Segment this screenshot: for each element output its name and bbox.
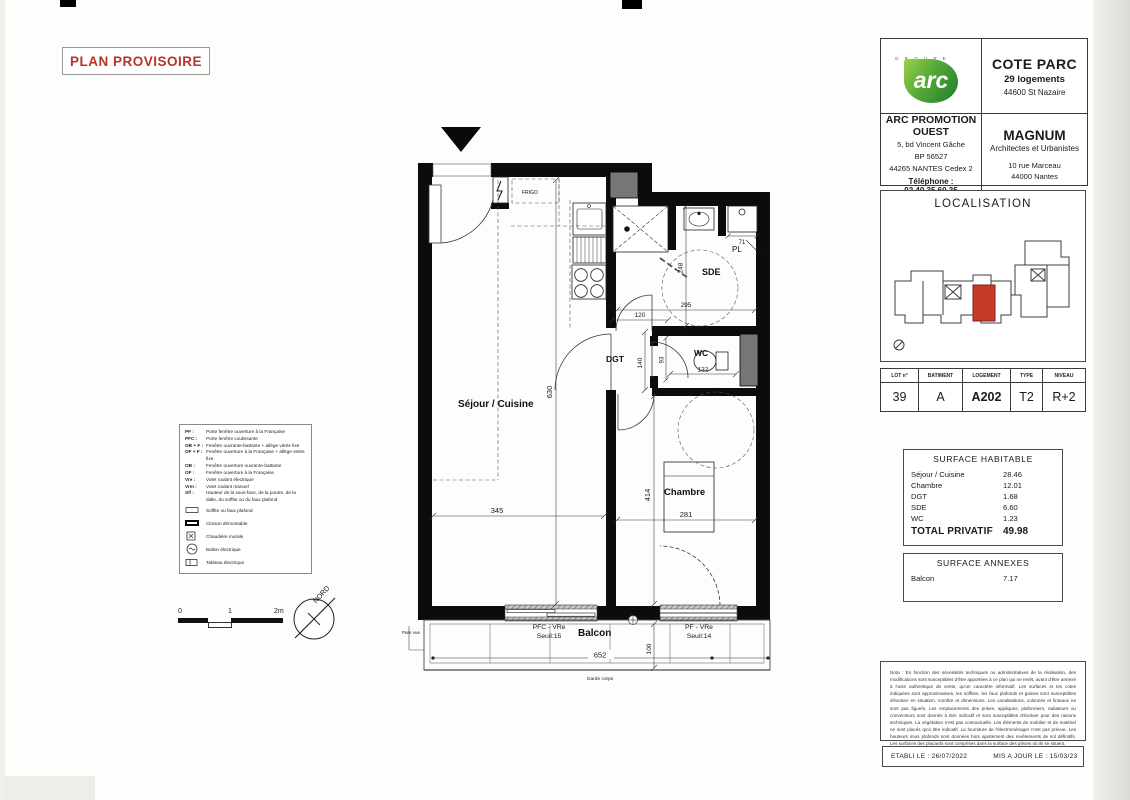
room-label-dgt: DGT [606,354,625,364]
established-date: ETABLI LE : 26/07/2022 [891,753,967,760]
lot-value-type: T2 [1011,383,1043,411]
legend-line: S/f :Hauteur de la sous-face, de la pout… [185,490,307,504]
floor-plan: 630 345 414 281 248 295 120 140 93 132 7… [400,110,780,710]
scale-0: 0 [178,608,182,615]
dim-93: 93 [660,356,666,363]
legend-line: PF :Porte fenêtre ouverture à la Françai… [185,429,307,436]
lot-table: LOT n° BATIMENT LOGEMENT TYPE NIVEAU 39 … [880,368,1086,412]
surface-row: DGT1.68 [911,491,1055,502]
lot-header-type: TYPE [1011,369,1043,383]
surface-total-row: TOTAL PRIVATIF49.98 [911,526,1055,537]
plan-balcony [409,616,770,671]
soffit-symbol-icon [185,506,206,514]
logo-cell: G R O U P E arc [881,39,982,114]
updated-date: MIS A JOUR LE : 15/03/23 [993,753,1077,760]
legend: PF :Porte fenêtre ouverture à la Françai… [179,424,312,574]
dim-345: 345 [491,506,504,515]
dim-140: 140 [637,357,644,368]
room-label-wc: WC [694,348,708,358]
lot-value-logement: A202 [963,383,1011,411]
room-label-sejour: Séjour / Cuisine [458,399,534,410]
architect-address1: 10 rue Marceau [1008,161,1061,171]
scan-shadow-right [1093,0,1130,800]
surface-annexes-box: SURFACE ANNEXES Balcon7.17 [903,553,1063,602]
surface-row: Balcon7.17 [911,573,1055,584]
dim-100: 100 [646,643,653,654]
dim-132: 132 [698,367,709,374]
legend-symbol-row: Ballon électrique [185,543,307,556]
scan-shadow-left [0,0,5,800]
localisation-box: LOCALISATION [880,190,1086,362]
project-name: COTE PARC [992,56,1077,72]
north-compass: NORD [288,582,340,644]
plan-dimension-labels: 630 345 414 281 248 295 120 140 93 132 7… [491,240,746,660]
architect-subtitle: Architectes et Urbanistes [990,144,1079,153]
lot-header-lot: LOT n° [881,369,919,383]
legend-line: OF + F :Fenêtre ouverture à la Française… [185,449,307,463]
surface-habitable-box: SURFACE HABITABLE Séjour / Cuisine28.46 … [903,449,1063,546]
lot-value-niveau: R+2 [1043,383,1085,411]
room-label-balcon: Balcon [578,628,611,639]
room-label-chambre: Chambre [664,487,705,498]
dim-248: 248 [678,262,685,273]
localisation-map [885,217,1081,357]
promoter-cell: ARC PROMOTION OUEST 5, bd Vincent Gâche … [881,114,982,195]
room-label-frigo: FRIGO [522,190,538,196]
surface-row: WC1.23 [911,513,1055,524]
dates-box: ETABLI LE : 26/07/2022 MIS A JOUR LE : 1… [882,746,1084,767]
legend-symbol-row: Chaudière murale [185,530,307,543]
dim-120: 120 [635,312,646,319]
compass-north-label: NORD [312,585,331,605]
legend-line: PFC :Porte fenêtre coulissante [185,436,307,443]
electrical-board-icon [185,558,206,567]
legend-symbol-row: Soffite ou faux plafond [185,504,307,517]
promoter-address2: BP 56527 [915,152,948,162]
dim-630: 630 [545,386,554,399]
localisation-unit-highlight [973,285,995,321]
legend-symbol-row: Cloison démontable [185,517,307,530]
dim-295: 295 [681,302,692,309]
annotation-garde-corps: Garde corps [587,676,614,682]
stamp-text: PLAN PROVISOIRE [70,54,202,69]
surface-row: SDE6.60 [911,502,1055,513]
annotation-window2-seuil: Seuil:14 [687,633,712,640]
scan-mark-top-center [622,0,642,9]
lot-header-niveau: NIVEAU [1043,369,1085,383]
lot-header-batiment: BATIMENT [919,369,963,383]
legend-line: Vre :Volet roulant électrique [185,477,307,484]
lot-header-logement: LOGEMENT [963,369,1011,383]
scale-2m: 2m [274,608,284,615]
water-heater-icon [185,543,206,555]
annotation-window2-type: PF - VRe [685,624,713,631]
dim-414: 414 [643,489,652,502]
dim-652: 652 [594,651,607,660]
plan-sheet: PLAN PROVISOIRE [0,0,1130,800]
localisation-title: LOCALISATION [881,198,1085,210]
architect-cell: MAGNUM Architectes et Urbanistes 10 rue … [982,114,1087,195]
architect-name: MAGNUM [1003,128,1065,143]
nota-box: Nota : En fonction des nécessités techni… [880,661,1086,741]
plan-annotations: PFC - VRe Seuil:15 PF - VRe Seuil:14 Par… [402,624,713,682]
annotation-window1-seuil: Seuil:15 [537,633,562,640]
nota-text: Nota : En fonction des nécessités techni… [890,670,1076,746]
provisional-plan-stamp: PLAN PROVISOIRE [62,47,210,75]
legend-line: Vrm :Volet roulant manuel [185,484,307,491]
surface-habitable-title: SURFACE HABITABLE [911,454,1055,464]
legend-line: OB + F :Fenêtre ouvrante-battante + allè… [185,443,307,450]
scan-shadow-bottom-left [0,776,95,800]
title-block-identity: G R O U P E arc COTE PARC 29 logements 4… [880,38,1088,186]
legend-symbol-row: Tableau électrique [185,556,307,569]
demountable-partition-icon [185,519,206,527]
lot-value-batiment: A [919,383,963,411]
scale-1: 1 [228,608,232,615]
dim-281: 281 [680,510,693,519]
legend-line: OB :Fenêtre ouverture ouvrante-battante [185,463,307,470]
surface-row: Chambre12.01 [911,480,1055,491]
lot-value-lot: 39 [881,383,919,411]
promoter-address1: 5, bd Vincent Gâche [897,140,965,150]
surface-row: Séjour / Cuisine28.46 [911,469,1055,480]
project-city: 44600 St Nazaire [1004,88,1066,97]
scan-mark-top-left [60,0,76,7]
room-label-sde: SDE [702,267,721,277]
wall-boiler-icon [185,531,206,541]
annotation-pare-vue: Pare vue [402,630,421,635]
entrance-arrow-icon [441,127,481,152]
scale-bar-graphic [178,618,288,632]
arc-logo-icon: arc [904,59,958,103]
project-units: 29 logements [1004,74,1065,85]
architect-address2: 44000 Nantes [1011,172,1058,182]
scale-bar: 0 1 2m [178,608,288,636]
promoter-address3: 44265 NANTES Cedex 2 [889,164,972,174]
promoter-name: ARC PROMOTION OUEST [876,114,986,138]
legend-line: OF :Fenêtre ouverture à la Française [185,470,307,477]
surface-annexes-title: SURFACE ANNEXES [911,558,1055,568]
room-label-pl: PL [732,245,742,254]
annotation-window1-type: PFC - VRe [533,624,566,631]
project-cell: COTE PARC 29 logements 44600 St Nazaire [982,39,1087,114]
